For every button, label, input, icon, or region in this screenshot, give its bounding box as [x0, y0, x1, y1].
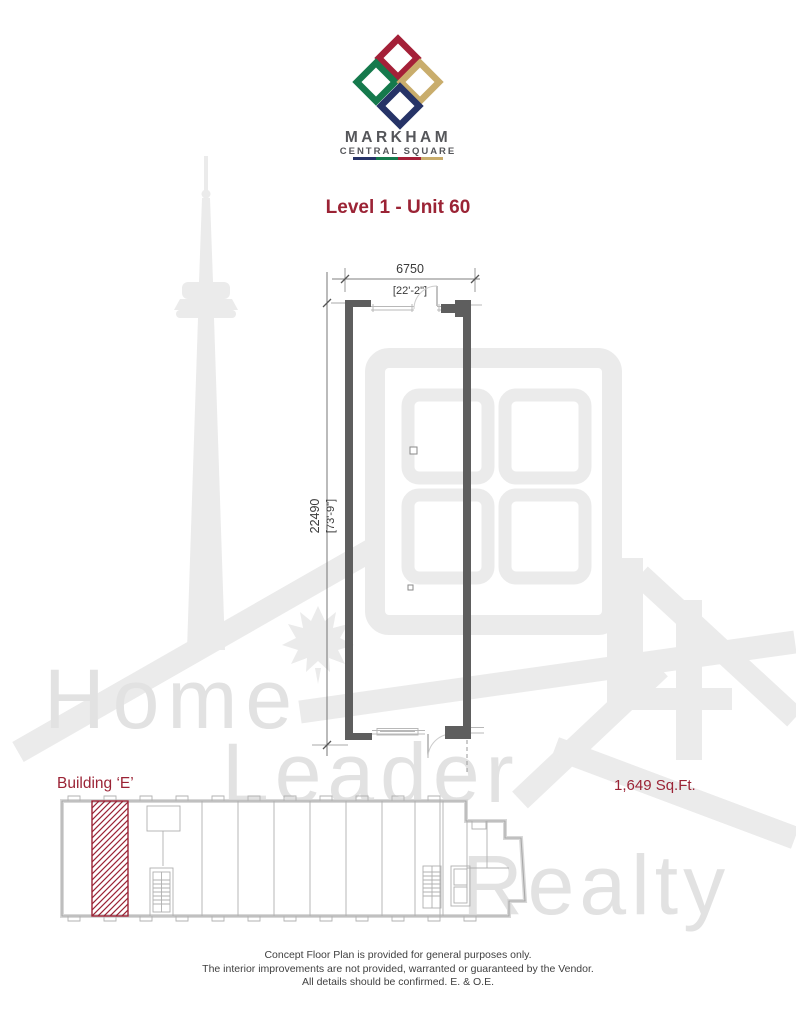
- building-outline: [62, 801, 525, 916]
- bar-segment-red: [398, 157, 421, 160]
- page-title: Level 1 - Unit 60: [0, 197, 796, 219]
- bar-segment-green: [376, 157, 399, 160]
- unit-area-label: 1,649 Sq.Ft.: [614, 777, 696, 794]
- column-markers: [408, 447, 417, 590]
- width-dim-metric: 6750: [396, 262, 424, 276]
- cn-tower-icon: [174, 156, 238, 650]
- bar-segment-navy: [353, 157, 376, 160]
- height-dim-metric: 22490: [308, 499, 322, 534]
- height-dimension: 22490 [73'-9"]: [308, 272, 348, 756]
- markham-logo-diamonds: [350, 34, 450, 130]
- unit-floor-plan-drawing: 6750 [22'-2"] 22490 [73'-9"]: [290, 250, 510, 790]
- disclaimer: Concept Floor Plan is provided for gener…: [0, 949, 796, 990]
- unit-dividers: [92, 801, 509, 916]
- bar-segment-tan: [421, 157, 444, 160]
- floor-plan-page: Home Leader Realty MARKHAM CENTRAL SQUAR…: [0, 0, 796, 1030]
- logo-subtitle: CENTRAL SQUARE: [0, 146, 796, 157]
- disclaimer-line-1: Concept Floor Plan is provided for gener…: [0, 949, 796, 963]
- width-dimension: 6750 [22'-2"]: [332, 262, 480, 297]
- logo-color-bar: [353, 157, 443, 160]
- core-rooms: [147, 806, 470, 916]
- logo-name: MARKHAM: [0, 129, 796, 147]
- disclaimer-line-3: All details should be confirmed. E. & O.…: [0, 976, 796, 990]
- height-dim-imperial: [73'-9"]: [325, 499, 337, 533]
- unit-location-hatch: [92, 801, 128, 916]
- building-key-plan: [50, 788, 550, 938]
- disclaimer-line-2: The interior improvements are not provid…: [0, 963, 796, 977]
- unit-walls: [345, 300, 471, 740]
